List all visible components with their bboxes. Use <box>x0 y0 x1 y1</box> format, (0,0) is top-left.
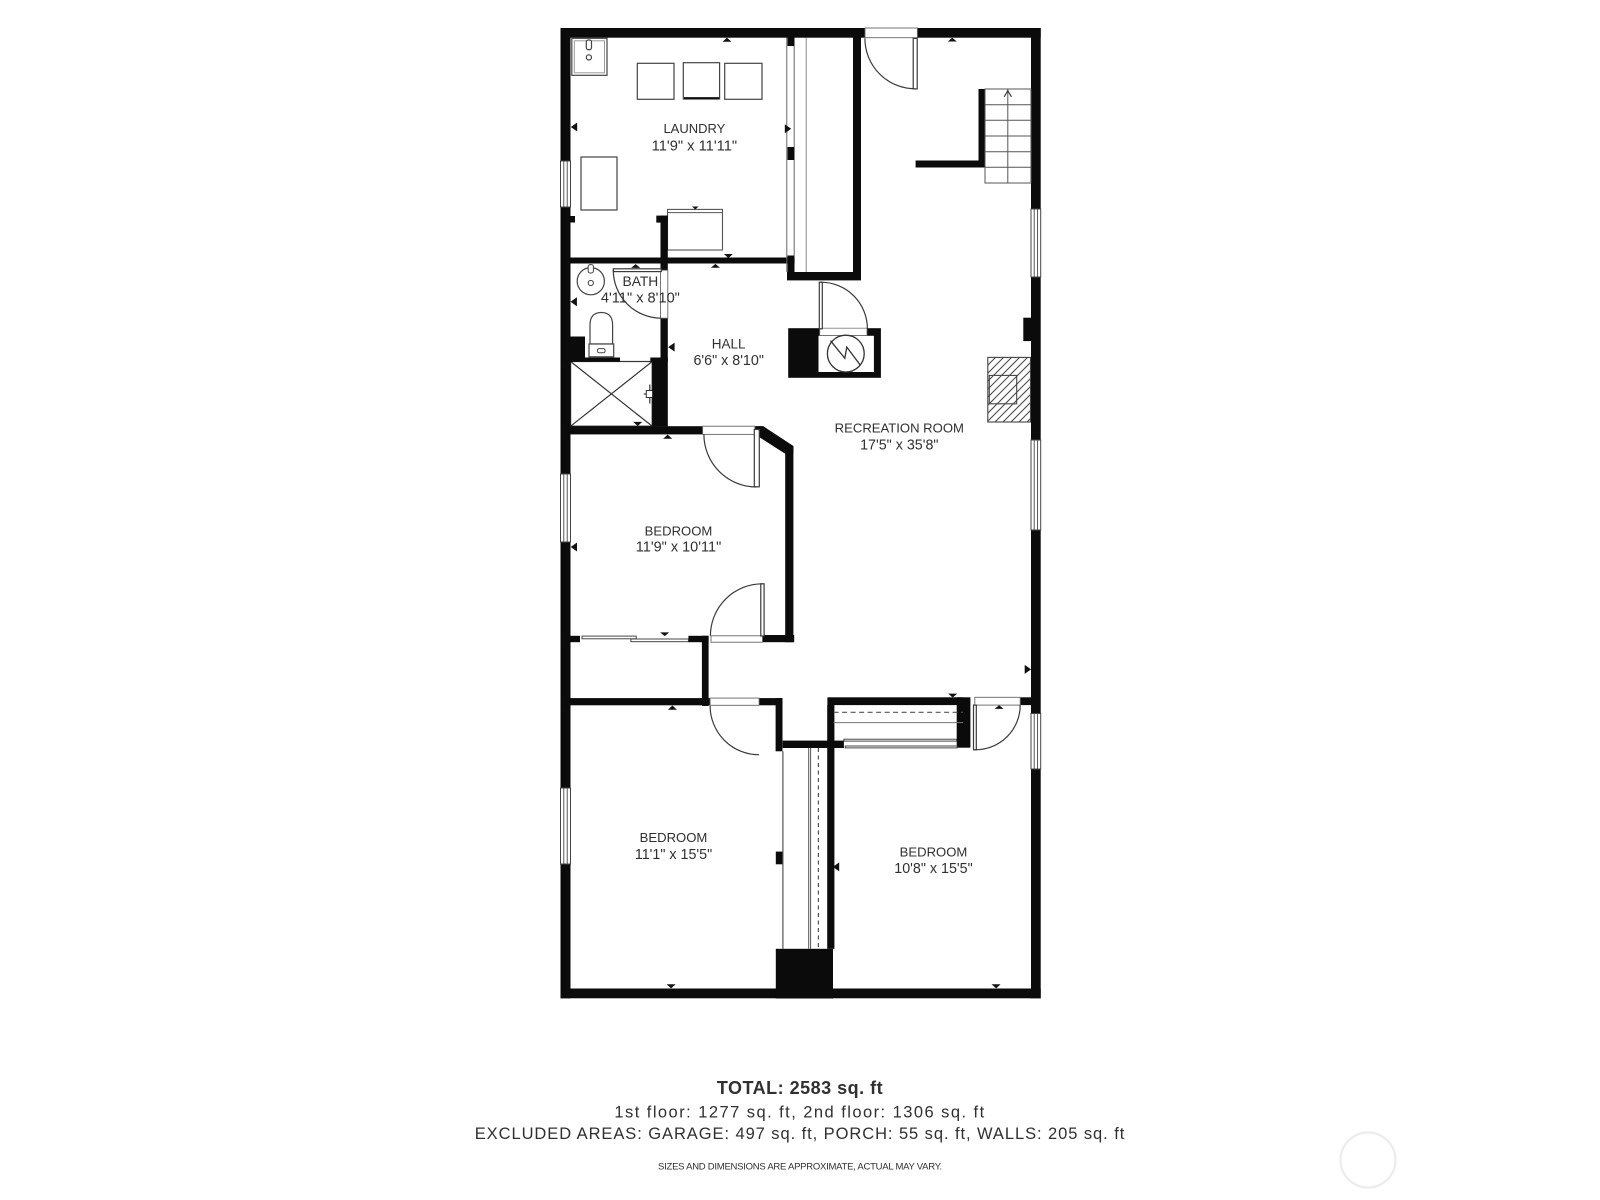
svg-text:TOTAL: 2583 sq. ft: TOTAL: 2583 sq. ft <box>717 1078 883 1098</box>
svg-text:11'1" x 15'5": 11'1" x 15'5" <box>635 847 712 863</box>
svg-text:EXCLUDED AREAS: GARAGE: 497 sq: EXCLUDED AREAS: GARAGE: 497 sq. ft, PORC… <box>475 1125 1125 1143</box>
svg-text:11'9" x 11'11": 11'9" x 11'11" <box>652 138 737 154</box>
svg-text:1st floor: 1277 sq. ft, 2nd fl: 1st floor: 1277 sq. ft, 2nd floor: 1306 … <box>614 1104 985 1122</box>
svg-text:6'6" x 8'10": 6'6" x 8'10" <box>693 353 763 369</box>
svg-text:BEDROOM: BEDROOM <box>900 845 968 860</box>
svg-text:17'5" x 35'8": 17'5" x 35'8" <box>860 437 938 453</box>
svg-text:4'11" x 8'10": 4'11" x 8'10" <box>601 291 680 307</box>
svg-text:10'8" x 15'5": 10'8" x 15'5" <box>894 861 972 877</box>
svg-text:HALL: HALL <box>712 336 746 351</box>
svg-text:BATH: BATH <box>623 274 659 289</box>
svg-text:RECREATION ROOM: RECREATION ROOM <box>835 420 964 435</box>
svg-text:BEDROOM: BEDROOM <box>640 830 708 845</box>
svg-text:11'9" x 10'11": 11'9" x 10'11" <box>636 539 721 555</box>
svg-text:SIZES AND DIMENSIONS ARE APPRO: SIZES AND DIMENSIONS ARE APPROXIMATE, AC… <box>658 1162 942 1173</box>
svg-text:LAUNDRY: LAUNDRY <box>663 121 725 136</box>
svg-text:BEDROOM: BEDROOM <box>645 523 713 538</box>
